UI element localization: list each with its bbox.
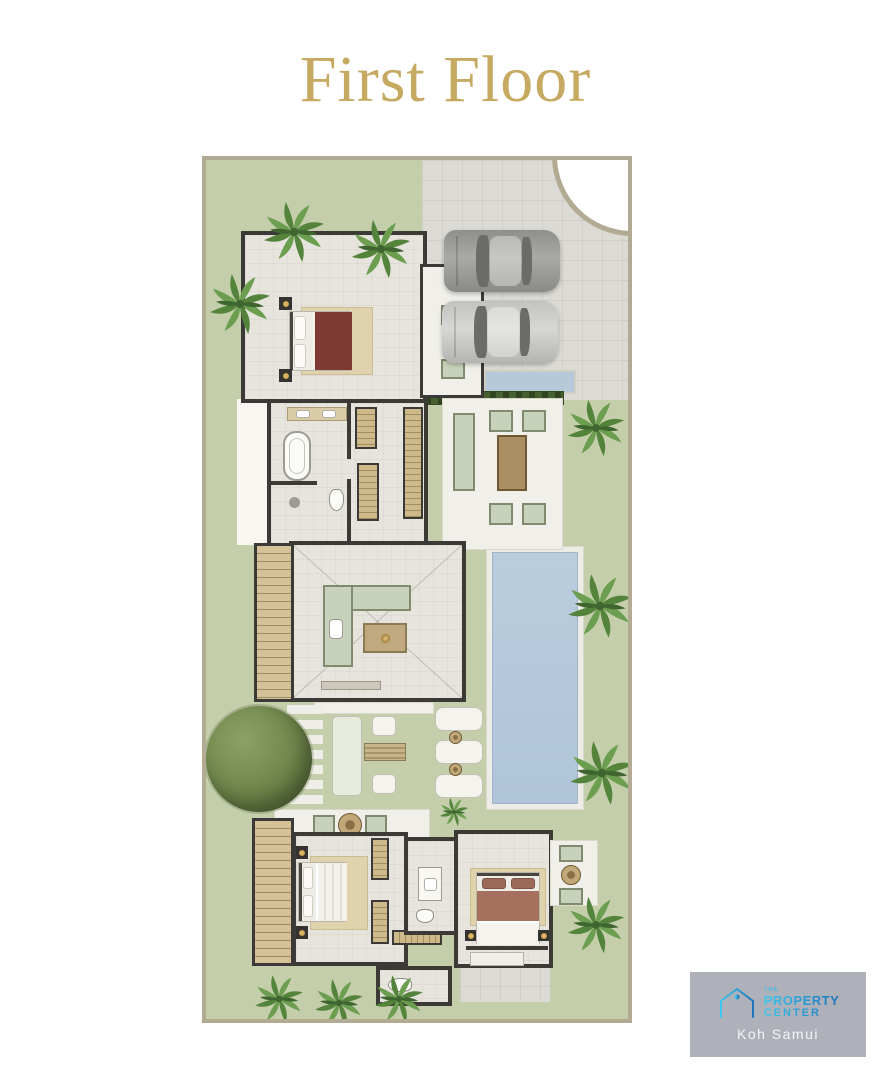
bathtub-basin [289, 438, 305, 474]
outdoor-armchair [489, 503, 513, 525]
lounge-terrace [442, 398, 563, 550]
car-rear-window [522, 237, 532, 284]
staircase-lower [252, 818, 294, 966]
sheet-fold [477, 921, 539, 945]
duvet [312, 312, 352, 370]
shower-wall [271, 481, 317, 485]
car-hood-line [456, 236, 458, 286]
logo-line-property: PROPERTY [764, 994, 840, 1007]
vanity [418, 867, 442, 901]
sink [424, 878, 437, 891]
nightstand [296, 926, 308, 939]
bed-3 [476, 872, 540, 944]
garden-chair [372, 716, 396, 736]
partition-wall [466, 946, 548, 950]
palm-tree-small [252, 972, 306, 1023]
pillow [482, 878, 506, 889]
wardrobe [371, 900, 389, 944]
terrace-chair [559, 845, 583, 862]
bed-2 [298, 862, 346, 922]
side-table [449, 731, 462, 744]
headboard [290, 312, 293, 370]
pillow [303, 895, 313, 917]
desk [470, 952, 524, 966]
logo-line-center: CENTER [764, 1008, 840, 1019]
car-top [444, 230, 560, 292]
bowl [381, 634, 390, 643]
outdoor-armchair [522, 410, 546, 432]
wardrobe [371, 838, 389, 880]
car-roof [488, 307, 518, 357]
car-roof [490, 236, 520, 286]
kitchen-island [363, 623, 407, 653]
sideboard [321, 681, 381, 690]
shower-drain [289, 497, 300, 508]
garden-table [364, 743, 406, 761]
palm-tree [206, 270, 274, 338]
nightstand [465, 930, 476, 941]
kitchen-sink [329, 619, 343, 639]
nightstand [296, 846, 308, 859]
side-walkway [237, 399, 267, 545]
palm-tree-small [312, 976, 366, 1023]
car-bottom [442, 301, 558, 363]
coffee-table [497, 435, 527, 491]
palm-tree-small [438, 796, 470, 828]
outdoor-sofa [453, 413, 475, 491]
garden-chair [372, 774, 396, 794]
master-bed [289, 311, 351, 371]
palm-tree [564, 396, 628, 460]
sun-lounger [435, 740, 483, 764]
logo-wordmark: THE PROPERTY CENTER [764, 987, 840, 1019]
palm-tree [260, 198, 328, 266]
rattan-table [561, 865, 581, 885]
headboard [477, 873, 539, 876]
wardrobe [357, 463, 379, 521]
palm-tree [348, 216, 414, 282]
garden-tree [206, 706, 312, 812]
page-title: First Floor [0, 42, 891, 118]
car-windshield [476, 235, 489, 287]
headboard [299, 863, 302, 921]
pillow [294, 316, 306, 340]
logo-row: THE PROPERTY CENTER [717, 987, 840, 1019]
pillow [511, 878, 535, 889]
sink [322, 410, 336, 418]
double-vanity [287, 407, 347, 421]
palm-tree [566, 737, 632, 809]
floor-plan [202, 156, 632, 1023]
kitchen-step-deck [314, 702, 434, 714]
car-windshield [474, 306, 487, 358]
void-cross-lines [293, 545, 462, 698]
kitchen [289, 541, 466, 702]
pillow [294, 344, 306, 368]
bedroom-3 [454, 830, 553, 968]
palm-tree [564, 893, 628, 957]
outdoor-armchair [489, 410, 513, 432]
duvet [477, 891, 539, 921]
nightstand [279, 297, 292, 310]
wardrobe [403, 407, 423, 519]
duvet [316, 863, 347, 921]
car-hood-line [454, 307, 456, 357]
wardrobe [355, 407, 377, 449]
pillow [303, 867, 313, 889]
sink [296, 410, 310, 418]
sun-lounger [435, 774, 483, 798]
nightstand [538, 930, 549, 941]
sun-lounger [435, 707, 483, 731]
page: First Floor [0, 0, 891, 1080]
toilet [329, 489, 344, 511]
bedroom-2 [292, 832, 408, 966]
nightstand [279, 369, 292, 382]
side-table [449, 763, 462, 776]
garden-daybed [332, 716, 362, 796]
outdoor-armchair [522, 503, 546, 525]
palm-tree [564, 570, 632, 642]
master-bathroom [267, 399, 428, 550]
car-rear-window [520, 308, 530, 355]
palm-tree-small [372, 972, 426, 1023]
property-center-house-icon [717, 987, 757, 1019]
toilet [416, 909, 434, 923]
staircase-upper [254, 543, 294, 702]
partition-wall [347, 403, 351, 459]
brand-logo: THE PROPERTY CENTER Koh Samui [690, 972, 866, 1057]
logo-location: Koh Samui [737, 1026, 819, 1042]
bathtub [283, 431, 311, 481]
